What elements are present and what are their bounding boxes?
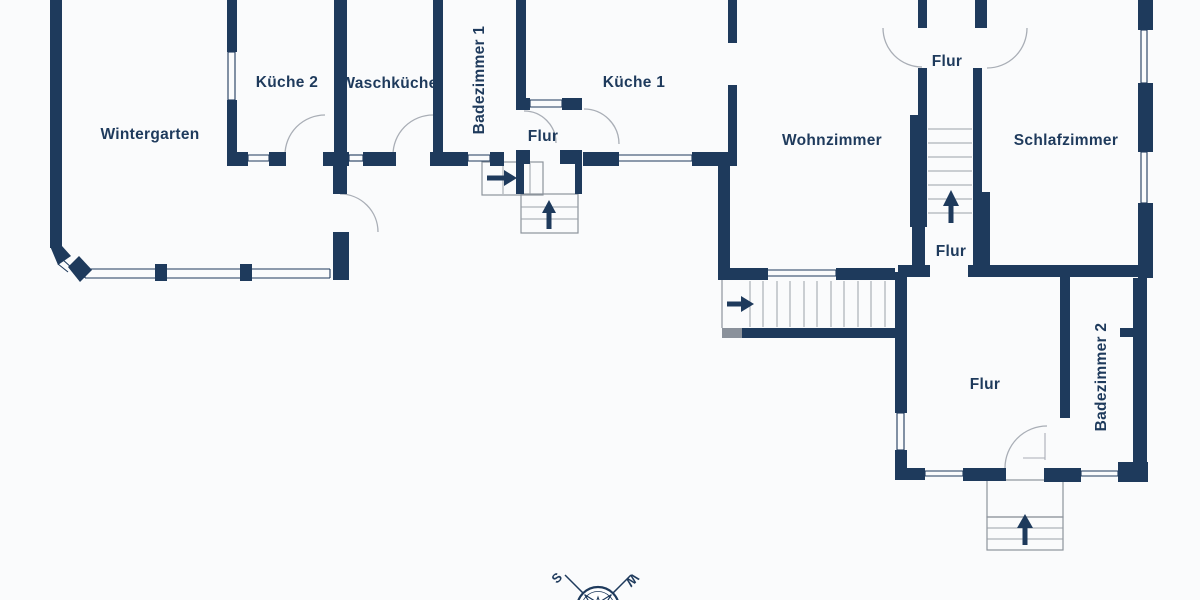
room-label-kueche-2: Küche 2 — [256, 74, 318, 91]
wall — [728, 85, 737, 156]
wall — [1118, 462, 1148, 482]
wall — [1138, 83, 1153, 152]
wall — [227, 0, 237, 52]
wall — [227, 152, 248, 166]
wall — [728, 0, 737, 43]
wall — [963, 468, 1006, 481]
wall — [516, 0, 526, 110]
wall — [718, 268, 768, 280]
wall — [516, 98, 530, 110]
wall — [968, 265, 1143, 277]
wall — [836, 268, 895, 280]
floorplan-canvas: WintergartenKüche 2WaschkücheBadezimmer … — [0, 0, 1200, 600]
wall — [918, 68, 927, 115]
wall — [430, 152, 468, 166]
wall — [50, 0, 62, 248]
wall — [973, 68, 982, 115]
room-label-wohnzimmer: Wohnzimmer — [782, 132, 882, 149]
wall — [516, 150, 530, 164]
wall — [583, 152, 619, 166]
wall — [910, 115, 927, 227]
wall — [718, 156, 730, 268]
wall — [560, 150, 582, 164]
wall — [1120, 328, 1133, 337]
wall — [363, 152, 396, 166]
wall — [912, 227, 925, 267]
wall — [973, 192, 990, 267]
wall — [516, 164, 524, 194]
wall — [1044, 468, 1081, 482]
wall — [562, 98, 582, 110]
background — [0, 0, 1200, 600]
wall — [1133, 278, 1147, 462]
room-label-flur-mitte: Flur — [936, 243, 966, 260]
wall — [918, 0, 927, 28]
room-label-flur-oben: Flur — [932, 53, 962, 70]
room-label-kueche-1: Küche 1 — [603, 74, 665, 91]
room-label-flur-klein: Flur — [528, 128, 558, 145]
wall — [323, 152, 349, 166]
wall — [1060, 275, 1070, 418]
wall — [692, 152, 737, 166]
wall — [333, 232, 349, 280]
room-label-schlafzimmer: Schlafzimmer — [1014, 132, 1118, 149]
wall — [973, 115, 982, 192]
wall — [227, 100, 237, 154]
wall — [895, 272, 907, 413]
room-label-badezimmer-2: Badezimmer 2 — [1093, 323, 1110, 432]
wall — [895, 468, 925, 480]
room-label-wintergarten: Wintergarten — [100, 126, 199, 143]
wall — [898, 265, 930, 277]
wall — [742, 328, 895, 338]
floorplan-page: WintergartenKüche 2WaschkücheBadezimmer … — [0, 0, 1200, 600]
wall — [490, 152, 504, 166]
wall-gray — [722, 328, 742, 338]
wall — [975, 0, 987, 28]
wall — [1138, 0, 1153, 30]
room-label-waschkueche: Waschküche — [340, 75, 437, 92]
room-label-badezimmer-1: Badezimmer 1 — [471, 26, 488, 135]
wall — [269, 152, 286, 166]
room-label-flur-unten: Flur — [970, 376, 1000, 393]
wall — [575, 164, 582, 194]
